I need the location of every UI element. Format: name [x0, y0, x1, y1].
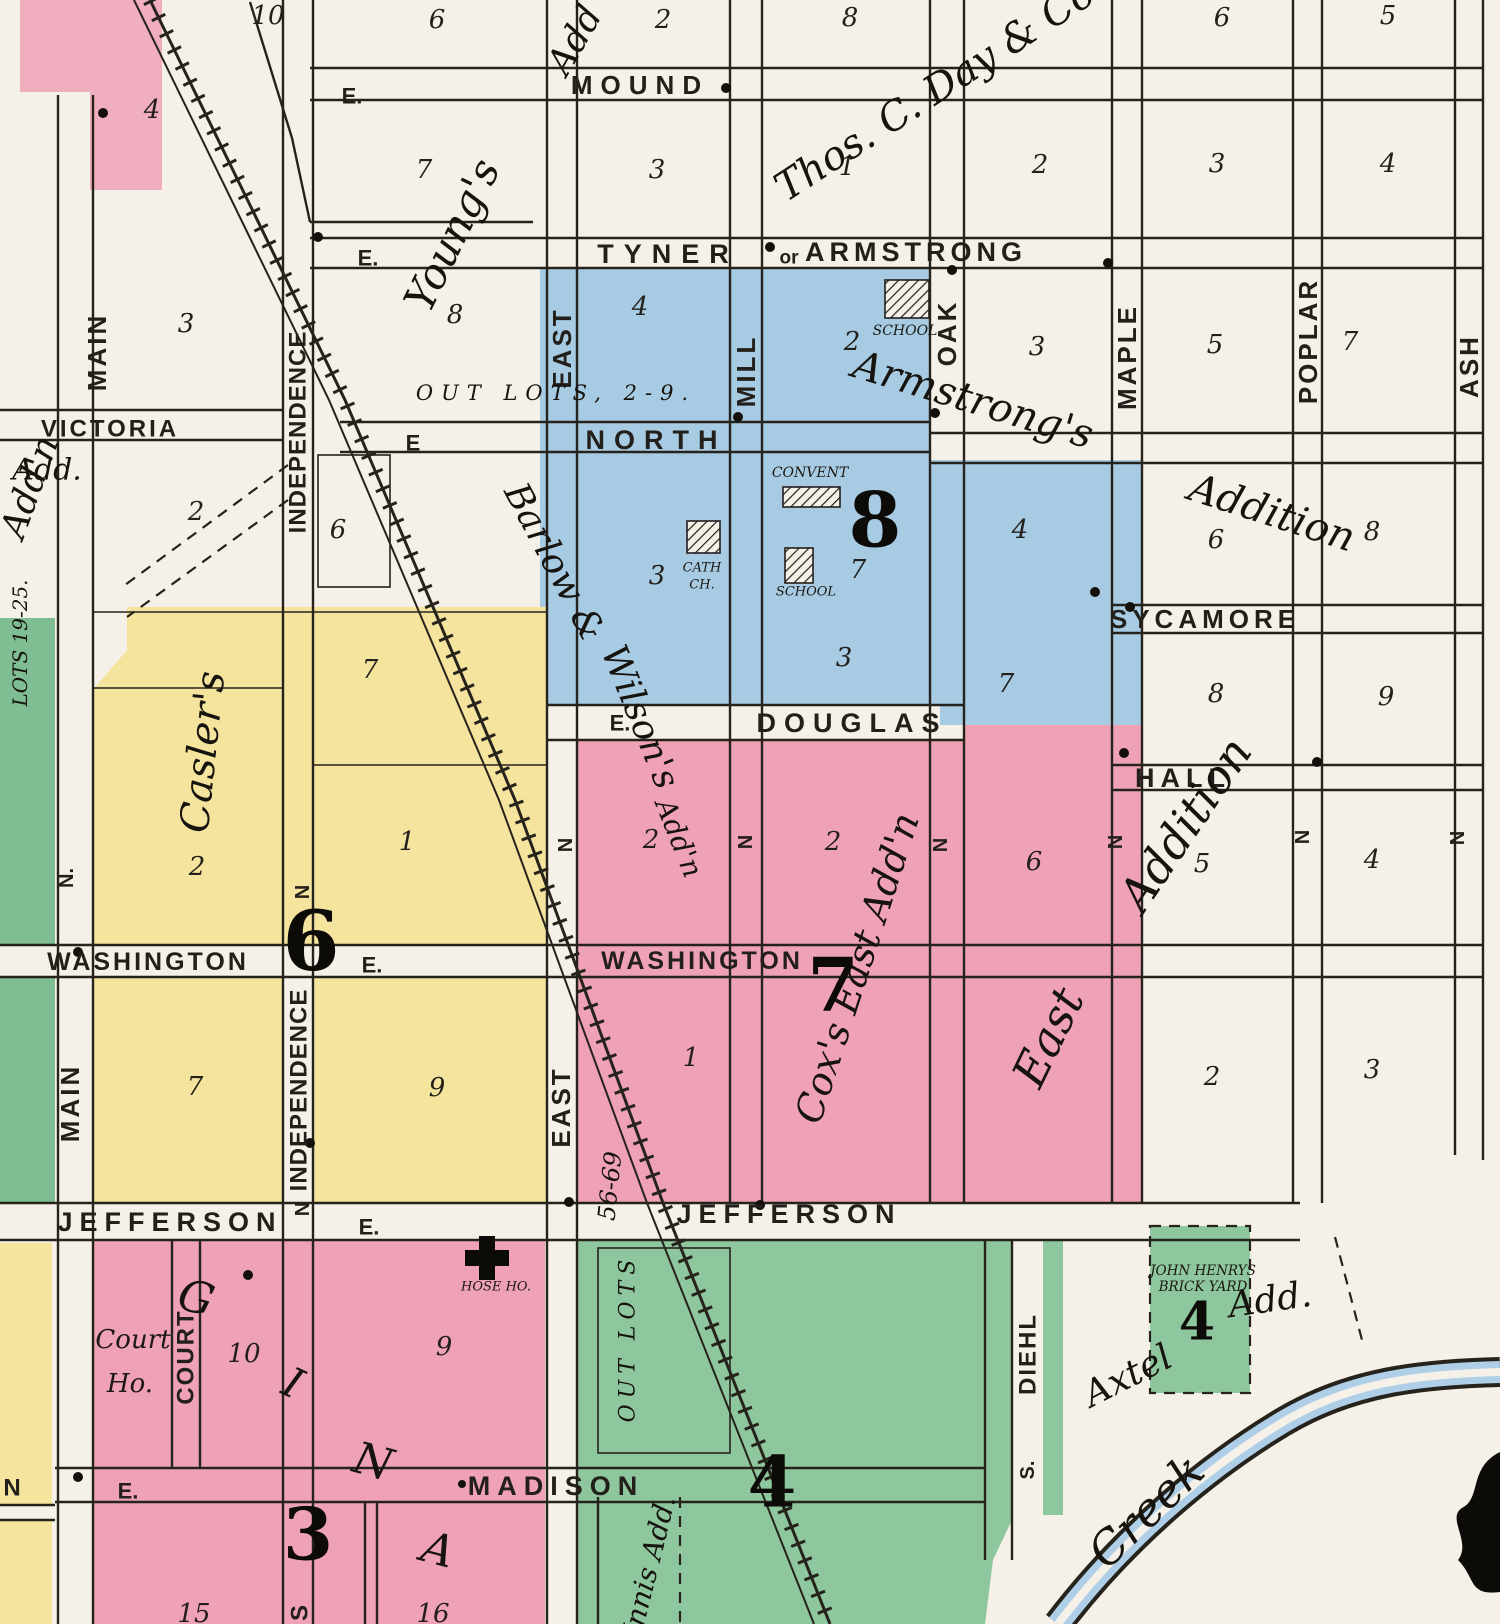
street-label-jefferson-west: JEFFERSON	[57, 1207, 282, 1237]
catholic-church-building	[687, 521, 720, 553]
block-number: 2	[642, 825, 660, 855]
poi-label-cath-line1: CATH	[683, 561, 722, 576]
district-fill-diehl-green-strip	[1043, 1240, 1063, 1515]
poi-label-convent: CONVENT	[772, 465, 850, 481]
block-number: 7	[362, 655, 379, 685]
poi-label-court-house-line2: Ho.	[106, 1369, 153, 1399]
block-number: 8	[1364, 517, 1381, 547]
block-number: 8	[447, 300, 464, 330]
street-label-independence-north: INDEPENDENCE	[285, 331, 312, 534]
street-label-or: or	[780, 248, 800, 269]
street-marker-n-mill: N	[735, 835, 757, 849]
block-number: 5	[1207, 330, 1224, 360]
street-prefix-e-mound: E.	[342, 84, 363, 109]
block-number: 8	[1208, 679, 1225, 709]
street-label-north: NORTH	[586, 425, 727, 455]
street-marker-n-independence-2: N	[292, 1202, 314, 1216]
street-label-cut-n: N	[3, 1475, 20, 1502]
block-number: 3	[1029, 332, 1046, 362]
poi-label-school-block8: SCHOOL	[776, 585, 836, 600]
block-number: 9	[1378, 682, 1395, 712]
block-number: 6	[1208, 525, 1225, 555]
block-number: 4	[631, 292, 649, 322]
poi-label-court-house-line1: Court	[95, 1325, 171, 1355]
street-prefix-e-north: E	[406, 431, 421, 456]
block-number: 3	[649, 155, 666, 185]
street-label-washington-east: WASHINGTON	[601, 947, 803, 975]
label-lots-19-25: LOTS 19-25.	[8, 579, 32, 707]
block-number: 7	[416, 155, 433, 185]
district-fill-southwest-yellow	[0, 1243, 52, 1505]
street-marker-n-maple: N	[1105, 835, 1127, 849]
street-label-cut-s: S	[287, 1605, 314, 1621]
block-number: 5	[1194, 849, 1211, 879]
street-marker-n-east: N	[555, 838, 577, 852]
ward-number-7: 7	[807, 943, 859, 1029]
block-number: 2	[187, 497, 205, 527]
block-number: 6	[1026, 847, 1043, 877]
block-number: 2	[1203, 1062, 1221, 1092]
label-out-lots: OUT LOTS	[616, 1254, 641, 1423]
block-number: 9	[436, 1332, 453, 1362]
street-prefix-n-main: N.	[56, 868, 78, 888]
block-number: 2	[654, 5, 672, 35]
school-building-block8	[785, 548, 813, 583]
street-label-diehl: DIEHL	[1015, 1313, 1042, 1395]
block-number: 10	[227, 1339, 260, 1369]
street-prefix-e-washington: E.	[362, 953, 383, 978]
street-prefix-e-madison: E.	[118, 1479, 139, 1504]
street-label-douglas: DOUGLAS	[757, 708, 948, 738]
block-number: 2	[843, 327, 861, 357]
street-prefix-e-tyner: E.	[358, 246, 379, 271]
street-marker-n-oak: N	[930, 838, 952, 852]
block-number: 4	[1363, 845, 1381, 875]
block-number: 7	[1342, 327, 1359, 357]
street-label-victoria: VICTORIA	[41, 416, 179, 443]
block-number: 2	[1031, 150, 1049, 180]
block-number: 3	[649, 561, 666, 591]
block-number: 10	[251, 1, 284, 31]
ward-number-8: 8	[849, 476, 902, 565]
street-label-east-south: EAST	[546, 1066, 576, 1147]
block-number: 4	[143, 95, 161, 125]
street-label-main-south: MAIN	[55, 1064, 85, 1142]
poi-label-school-armstrong: SCHOOL	[873, 323, 938, 339]
block-number: 7	[998, 669, 1015, 699]
block-number: 8	[842, 3, 859, 33]
block-number: 15	[177, 1599, 210, 1624]
street-prefix-e-jefferson: E.	[359, 1215, 380, 1240]
block-number: 6	[330, 515, 347, 545]
block-number: 2	[188, 852, 206, 882]
block-number: 16	[416, 1599, 449, 1624]
district-fill-southwest-yellow-2	[0, 1520, 52, 1624]
plat-map: MOUND E. TYNER or ARMSTRONG E. NORTH E V…	[0, 0, 1500, 1624]
street-label-madison: MADISON	[468, 1471, 645, 1501]
street-label-mound: MOUND	[571, 70, 709, 100]
street-label-maple: MAPLE	[1112, 304, 1142, 410]
street-marker-n-ash: N	[1447, 831, 1469, 845]
street-label-independence-south: INDEPENDENCE	[286, 989, 313, 1192]
street-prefix-s-diehl: S.	[1017, 1461, 1039, 1480]
block-number: 3	[178, 309, 195, 339]
block-number: 1	[399, 827, 416, 857]
block-number: 4	[1011, 515, 1029, 545]
street-label-sycamore: SYCAMORE	[1110, 604, 1300, 634]
block-number: 1	[683, 1043, 700, 1073]
ward-number-4-axtel: 4	[1179, 1292, 1215, 1353]
block-number: 6	[1214, 3, 1231, 33]
block-number: 1	[839, 152, 856, 182]
block-number: 4	[1379, 149, 1397, 179]
street-label-jefferson-east: JEFFERSON	[676, 1199, 901, 1229]
convent-building	[783, 487, 840, 507]
block-number: 3	[1364, 1055, 1381, 1085]
street-label-armstrong: ARMSTRONG	[805, 237, 1027, 267]
poi-label-hose-house: HOSE HO.	[460, 1280, 531, 1295]
block-number: 9	[429, 1073, 446, 1103]
label-out-lots-2-9: OUT LOTS, 2-9.	[416, 381, 696, 405]
street-marker-n-poplar: N	[1292, 830, 1314, 844]
block-number: 3	[836, 643, 853, 673]
street-label-mill: MILL	[731, 335, 761, 408]
street-label-tyner: TYNER	[597, 239, 739, 269]
block-number: 2	[824, 827, 842, 857]
street-label-poplar: POPLAR	[1293, 278, 1323, 404]
block-number: 6	[429, 5, 446, 35]
poi-label-cath-line2: CH.	[689, 578, 714, 593]
block-number: 7	[187, 1072, 204, 1102]
street-label-ash: ASH	[1454, 334, 1484, 398]
district-label-victoria-add: Add.	[9, 453, 82, 488]
map-canvas: MOUND E. TYNER or ARMSTRONG E. NORTH E V…	[0, 0, 1500, 1624]
block-number: 3	[1209, 149, 1226, 179]
street-label-main-north: MAIN	[82, 313, 112, 391]
block-number: 7	[850, 555, 867, 585]
ward-number-4: 4	[748, 1441, 797, 1524]
ward-number-6: 6	[282, 894, 339, 990]
ward-number-3: 3	[283, 1492, 333, 1577]
poi-label-brick-yard-line1: JOHN HENRYS	[1147, 1263, 1256, 1279]
street-label-east-north: EAST	[547, 307, 577, 388]
block-number: 5	[1380, 1, 1397, 31]
school-building-armstrong	[885, 280, 929, 318]
street-label-washington-west: WASHINGTON	[47, 948, 249, 976]
